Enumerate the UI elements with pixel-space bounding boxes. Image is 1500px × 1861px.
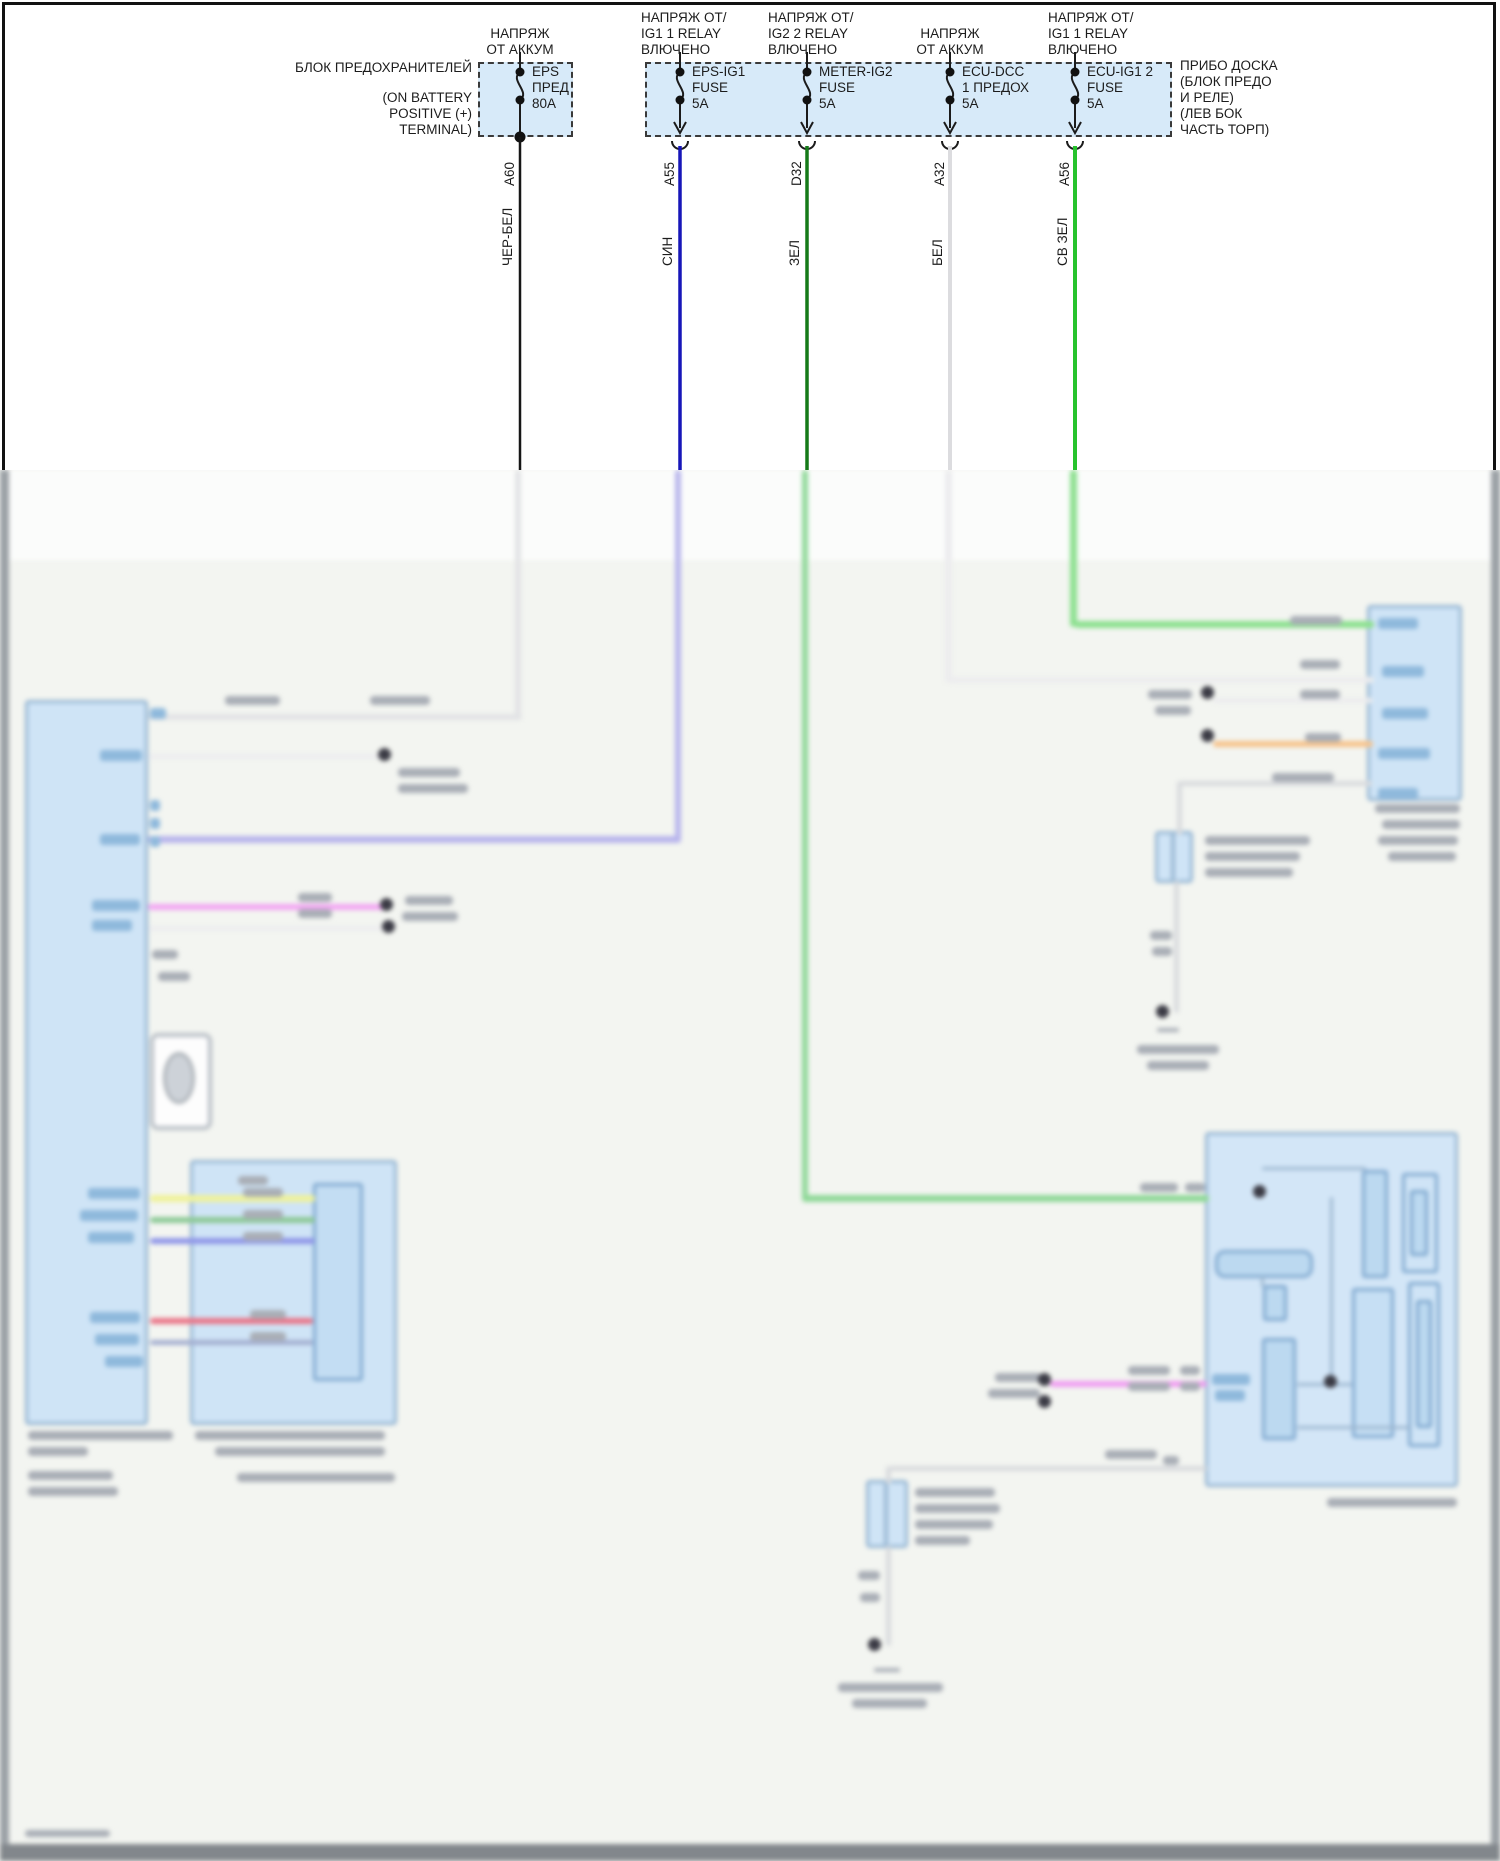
blurred-text xyxy=(398,768,460,777)
internal-component-7-core xyxy=(1416,1300,1432,1428)
blurred-text xyxy=(243,1232,283,1241)
wire-segment xyxy=(515,470,521,720)
pin-label-chip xyxy=(92,900,140,911)
blurred-text xyxy=(1128,1366,1170,1375)
blurred-text xyxy=(237,1473,395,1482)
pin-label-chip xyxy=(1378,788,1418,799)
junction-dot xyxy=(1201,729,1214,742)
blurred-text xyxy=(1105,1450,1157,1459)
blurred-text xyxy=(1382,820,1460,829)
blurred-text xyxy=(243,1188,283,1197)
blurred-text xyxy=(915,1488,995,1497)
blurred-text xyxy=(28,1487,118,1496)
wire-segment xyxy=(1070,470,1077,627)
internal-component-3 xyxy=(1215,1250,1313,1278)
wire-segment xyxy=(1174,881,1179,1013)
wire-segment xyxy=(945,470,952,683)
blurred-text xyxy=(238,1176,268,1185)
wire-segment xyxy=(886,1466,891,1484)
pin-label-chip xyxy=(1382,708,1428,719)
wire-segment xyxy=(148,754,388,759)
junction-dot xyxy=(1324,1375,1337,1388)
blurred-text xyxy=(1290,616,1342,625)
junction-dot xyxy=(382,920,395,933)
blurred-text xyxy=(225,696,280,705)
internal-component-1 xyxy=(1362,1170,1388,1278)
blurred-text xyxy=(370,696,430,705)
pin-label-chip xyxy=(80,1210,138,1221)
wire-segment xyxy=(886,1546,891,1646)
blurred-text xyxy=(1185,1183,1205,1192)
blurred-text xyxy=(1150,931,1172,940)
wire-segment xyxy=(148,714,522,720)
scanned-diagram-region xyxy=(0,470,1500,1861)
junction-dot xyxy=(1156,1005,1169,1018)
scan-border-left xyxy=(0,470,9,1861)
internal-component-6 xyxy=(1352,1288,1394,1438)
wire-segment xyxy=(150,1318,313,1324)
blurred-text xyxy=(250,1310,286,1319)
blurred-text xyxy=(158,972,190,981)
wire-segment xyxy=(148,904,390,910)
pin-label-chip xyxy=(90,1312,140,1323)
scan-border-bottom xyxy=(0,1844,1500,1861)
blurred-text xyxy=(1300,690,1340,699)
wire-segment xyxy=(1213,741,1373,747)
blurred-text xyxy=(1375,804,1460,813)
blurred-text xyxy=(995,1373,1041,1382)
blurred-text xyxy=(1147,1061,1209,1070)
blurred-text xyxy=(28,1471,113,1480)
blurred-text xyxy=(1163,1456,1179,1465)
blurred-artwork xyxy=(0,470,1500,1861)
blurred-text xyxy=(915,1536,970,1545)
wire-segment xyxy=(802,1195,1209,1202)
blurred-text xyxy=(28,1431,173,1440)
blurred-text xyxy=(28,1447,88,1456)
blurred-text xyxy=(1378,836,1458,845)
wire-segment xyxy=(150,1238,315,1244)
junction-dot xyxy=(1201,686,1214,699)
blurred-text xyxy=(838,1683,943,1692)
wire-segment xyxy=(802,470,808,1201)
pin-label-chip xyxy=(1382,666,1424,677)
blurred-text xyxy=(1205,852,1300,861)
pin-label-chip xyxy=(1215,1390,1245,1401)
junction-dot xyxy=(378,748,391,761)
blurred-text xyxy=(1148,690,1192,699)
junction-dot xyxy=(868,1638,881,1651)
blurred-text xyxy=(243,1210,283,1219)
blurred-text xyxy=(1152,947,1172,956)
junction-dot xyxy=(1038,1395,1051,1408)
blurred-text xyxy=(298,893,332,902)
internal-component-4 xyxy=(1263,1285,1287,1321)
blurred-text xyxy=(852,1699,927,1708)
blurred-text xyxy=(1155,706,1191,715)
pin-label-chip xyxy=(1212,1374,1250,1385)
blurred-text xyxy=(1180,1382,1200,1391)
blurred-text xyxy=(988,1389,1040,1398)
blurred-text xyxy=(1180,1366,1200,1375)
pin-label-chip xyxy=(88,1232,134,1243)
blurred-text xyxy=(915,1520,993,1529)
wire-segment xyxy=(150,1195,315,1202)
pin-label-chip xyxy=(92,920,132,931)
junction-dot xyxy=(380,898,393,911)
inline-connector-bottom-pin xyxy=(884,1480,888,1548)
wire-segment xyxy=(148,926,390,931)
wire-segment xyxy=(1213,698,1373,703)
inline-connector-right-pin xyxy=(1171,831,1175,883)
blurred-text xyxy=(250,1332,286,1341)
wire-segment xyxy=(1177,781,1182,835)
wiring-diagram-page: НАПРЯЖ ОТ АККУМ НАПРЯЖ ОТ/ IG1 1 RELAY В… xyxy=(0,0,1500,1861)
blurred-text xyxy=(215,1447,385,1456)
blurred-text xyxy=(860,1593,880,1602)
blurred-text xyxy=(398,784,468,793)
fuse-terminal-dots xyxy=(515,68,1080,143)
junction-dot xyxy=(1253,1185,1266,1198)
blurred-text xyxy=(858,1571,880,1580)
blurred-text xyxy=(1327,1498,1457,1507)
wire-segment xyxy=(1297,1426,1410,1429)
wire-segment xyxy=(150,1217,315,1223)
wire-segment xyxy=(950,677,1374,683)
pin-label-chip xyxy=(100,834,140,845)
blurred-text xyxy=(402,912,458,921)
pin-label-chip xyxy=(150,708,166,719)
pin-label-chip xyxy=(150,836,160,847)
wire-segment xyxy=(1330,1197,1333,1385)
blurred-text xyxy=(195,1431,385,1440)
pin-label-chip xyxy=(1378,748,1430,759)
blurred-text xyxy=(1205,836,1310,845)
blurred-text xyxy=(1128,1382,1170,1391)
motor-symbol xyxy=(163,1052,195,1104)
wire-segment xyxy=(675,470,681,842)
junction-dot xyxy=(1038,1373,1051,1386)
scan-border-right xyxy=(1491,470,1500,1861)
blurred-text xyxy=(1300,660,1340,669)
pin-label-chip xyxy=(88,1188,140,1199)
pin-label-chip xyxy=(100,750,142,761)
wire-segment xyxy=(890,1466,1207,1471)
steering-unit-connector xyxy=(313,1183,363,1381)
internal-component-2-core xyxy=(1410,1190,1428,1256)
blurred-text xyxy=(1388,852,1456,861)
blurred-text xyxy=(25,1830,110,1837)
blurred-text xyxy=(1305,733,1341,742)
internal-component-5 xyxy=(1262,1338,1296,1440)
blurred-text xyxy=(1157,1028,1179,1032)
blurred-text xyxy=(1137,1045,1219,1054)
blurred-text xyxy=(1140,1183,1178,1192)
pin-label-chip xyxy=(150,800,160,811)
right-connector-box xyxy=(1367,605,1462,801)
blurred-text xyxy=(1272,773,1334,782)
scan-top-band xyxy=(0,470,1500,560)
blurred-text xyxy=(874,1668,900,1672)
blurred-text xyxy=(152,950,178,959)
wire-segment xyxy=(150,1340,313,1345)
fuse-element-strokes xyxy=(517,52,1083,149)
pin-label-chip xyxy=(105,1356,143,1367)
pin-label-chip xyxy=(1378,618,1418,629)
wire-segment xyxy=(148,836,681,843)
fuse-symbols-and-wires xyxy=(0,0,1500,470)
wire-segment xyxy=(1261,1276,1264,1287)
blurred-text xyxy=(1205,868,1293,877)
blurred-text xyxy=(915,1504,1000,1513)
pin-label-chip xyxy=(150,818,160,829)
wire-segment xyxy=(1262,1167,1366,1170)
pin-label-chip xyxy=(95,1334,139,1345)
blurred-text xyxy=(405,896,453,905)
blurred-text xyxy=(298,909,332,918)
